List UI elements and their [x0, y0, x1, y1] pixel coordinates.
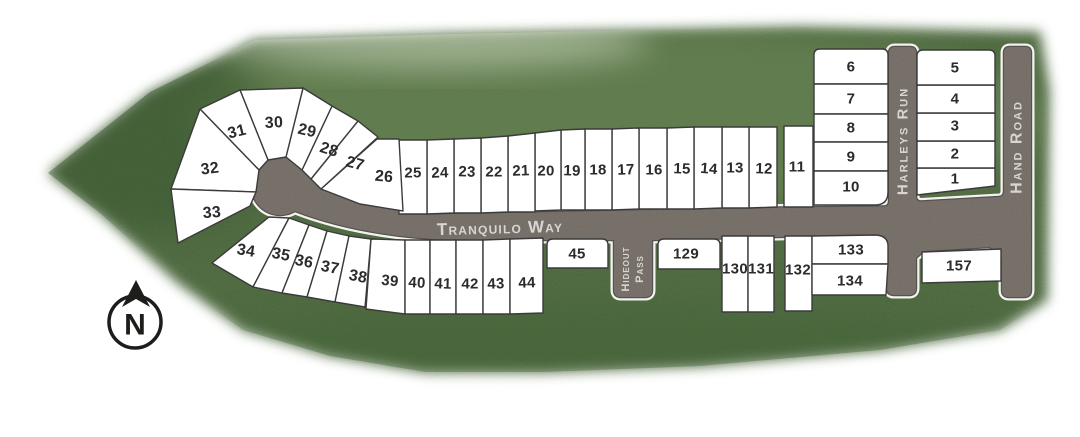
svg-text:157: 157	[946, 258, 972, 275]
lot-2: 2	[917, 141, 995, 168]
lot-7: 7	[814, 84, 888, 114]
svg-text:18: 18	[589, 162, 606, 179]
lot-20: 20	[535, 130, 561, 211]
lot-157: 157	[922, 249, 1001, 283]
lot-5: 5	[917, 50, 995, 85]
svg-text:33: 33	[202, 204, 222, 222]
lot-40: 40	[405, 240, 430, 314]
svg-text:34: 34	[236, 241, 257, 261]
svg-text:9: 9	[847, 149, 856, 166]
svg-text:45: 45	[568, 246, 585, 263]
svg-text:133: 133	[838, 242, 864, 259]
svg-text:13: 13	[726, 160, 743, 177]
lot-43: 43	[483, 239, 510, 314]
lot-131: 131	[748, 236, 774, 312]
svg-text:38: 38	[347, 267, 368, 287]
svg-text:10: 10	[842, 179, 859, 196]
svg-text:5: 5	[951, 60, 960, 77]
svg-text:6: 6	[847, 59, 856, 76]
svg-text:2: 2	[951, 146, 960, 163]
svg-text:24: 24	[431, 164, 449, 182]
lot-9: 9	[814, 142, 888, 171]
svg-text:14: 14	[700, 160, 719, 178]
svg-text:129: 129	[673, 246, 699, 263]
svg-text:19: 19	[563, 162, 581, 180]
lot-3: 3	[917, 113, 995, 141]
svg-text:15: 15	[673, 160, 691, 178]
svg-text:44: 44	[518, 274, 536, 292]
svg-text:1: 1	[951, 171, 960, 188]
road-label-tranquilo-way: Tranquilo Way	[437, 217, 564, 239]
lot-24: 24	[427, 139, 454, 214]
svg-text:134: 134	[837, 273, 863, 290]
lot-130: 130	[722, 236, 748, 312]
svg-text:20: 20	[537, 163, 554, 180]
svg-text:130: 130	[722, 261, 748, 278]
lot-45: 45	[547, 239, 608, 268]
svg-text:21: 21	[512, 162, 530, 180]
road-label-hideout-line1: Hideout	[620, 246, 632, 291]
svg-text:131: 131	[748, 261, 774, 278]
lot-13: 13	[722, 127, 749, 208]
svg-text:41: 41	[434, 275, 452, 293]
road-label-harleys-run: Harleys Run	[895, 87, 912, 195]
lot-12: 12	[749, 127, 777, 208]
road-label-hideout-line2: Pass	[634, 255, 646, 283]
lot-42: 42	[456, 240, 483, 314]
svg-text:40: 40	[408, 274, 426, 292]
svg-text:4: 4	[951, 91, 960, 108]
compass-north-indicator: N	[109, 280, 161, 348]
svg-text:35: 35	[270, 245, 291, 265]
lot-4: 4	[917, 85, 995, 113]
lot-10: 10	[814, 171, 888, 205]
lot-22: 22	[481, 136, 508, 213]
lot-21: 21	[508, 133, 535, 212]
svg-text:39: 39	[381, 272, 400, 291]
svg-text:32: 32	[200, 159, 220, 178]
lot-23: 23	[454, 138, 481, 213]
svg-text:26: 26	[374, 168, 394, 187]
svg-text:23: 23	[458, 163, 476, 181]
lot-14: 14	[694, 127, 722, 209]
svg-text:37: 37	[319, 258, 340, 278]
lot-133: 133	[812, 235, 888, 264]
svg-text:12: 12	[755, 160, 773, 178]
svg-text:16: 16	[645, 162, 662, 179]
svg-text:43: 43	[487, 275, 505, 293]
lot-134: 134	[812, 264, 888, 295]
lot-41: 41	[430, 240, 456, 314]
svg-text:42: 42	[461, 276, 478, 293]
lot-16: 16	[639, 128, 667, 209]
lot-129: 129	[658, 239, 720, 269]
lot-39: 39	[366, 239, 405, 314]
svg-text:3: 3	[951, 118, 960, 135]
lot-6: 6	[814, 49, 888, 84]
road-label-hand-road: Hand Road	[1009, 100, 1026, 194]
lot-15: 15	[667, 127, 694, 209]
north-arrow-icon	[122, 280, 150, 307]
lot-132: 132	[785, 236, 812, 311]
lot-18: 18	[585, 129, 612, 210]
lot-19: 19	[561, 129, 585, 210]
svg-text:30: 30	[264, 114, 283, 132]
lot-44: 44	[510, 238, 543, 314]
site-map: 1 2 3 4 5 6 7 8 9 10 11 12 13 14 15 16 1…	[0, 0, 1080, 437]
lot-8: 8	[814, 114, 888, 142]
svg-text:25: 25	[404, 165, 421, 182]
svg-text:8: 8	[847, 120, 856, 137]
svg-text:36: 36	[293, 252, 314, 272]
svg-text:22: 22	[485, 164, 502, 181]
svg-text:7: 7	[847, 91, 856, 108]
lot-11: 11	[784, 126, 813, 207]
svg-text:17: 17	[617, 161, 635, 179]
lot-17: 17	[612, 128, 639, 210]
svg-text:132: 132	[785, 262, 811, 279]
compass-north-label: N	[124, 309, 146, 342]
svg-text:11: 11	[789, 159, 805, 176]
